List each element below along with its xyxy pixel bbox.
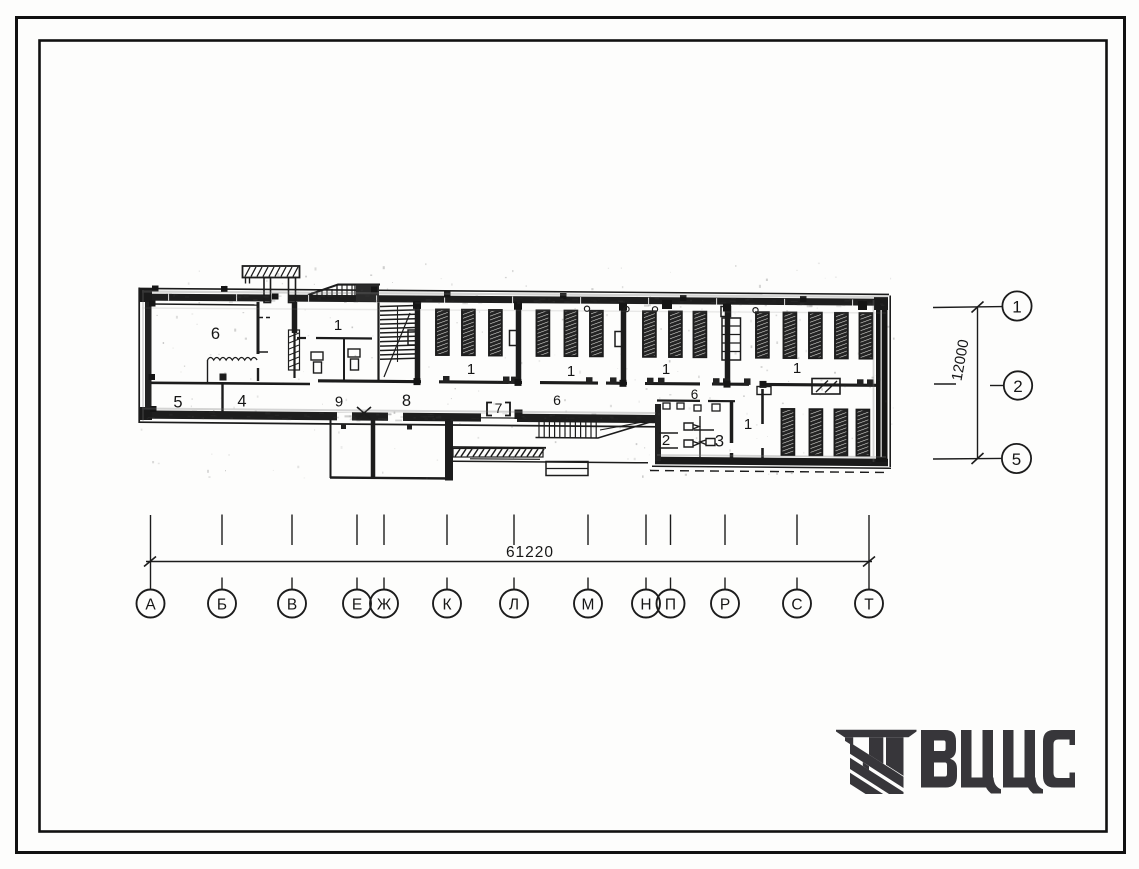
svg-text:9: 9: [335, 394, 343, 411]
svg-text:6: 6: [553, 392, 561, 408]
svg-text:1: 1: [567, 363, 575, 380]
svg-text:2: 2: [662, 432, 670, 449]
svg-text:12000: 12000: [949, 338, 973, 382]
svg-text:2: 2: [1013, 377, 1022, 396]
svg-text:П: П: [665, 597, 676, 614]
svg-text:61220: 61220: [506, 544, 554, 561]
svg-text:1: 1: [334, 317, 342, 334]
svg-text:5: 5: [1012, 450, 1021, 469]
svg-text:1: 1: [744, 416, 752, 433]
svg-text:1: 1: [467, 361, 475, 378]
svg-text:В: В: [287, 597, 297, 614]
svg-text:4: 4: [237, 393, 246, 411]
svg-text:Н: Н: [640, 597, 651, 614]
svg-text:1: 1: [662, 361, 670, 378]
svg-text:М: М: [582, 597, 595, 614]
svg-text:6: 6: [211, 325, 220, 343]
svg-text:Б: Б: [217, 597, 227, 614]
svg-text:6: 6: [691, 387, 699, 402]
svg-text:А: А: [145, 597, 156, 614]
svg-text:Т: Т: [864, 597, 874, 614]
svg-text:3: 3: [715, 433, 724, 451]
svg-text:Р: Р: [720, 597, 730, 614]
svg-text:7: 7: [495, 400, 503, 416]
svg-text:Ж: Ж: [377, 597, 392, 614]
svg-text:Л: Л: [509, 597, 519, 614]
svg-text:К: К: [442, 597, 451, 614]
svg-text:С: С: [791, 597, 802, 614]
svg-text:Е: Е: [352, 597, 362, 614]
svg-text:1: 1: [1012, 298, 1021, 317]
svg-text:8: 8: [402, 392, 411, 410]
svg-text:1: 1: [793, 360, 801, 377]
